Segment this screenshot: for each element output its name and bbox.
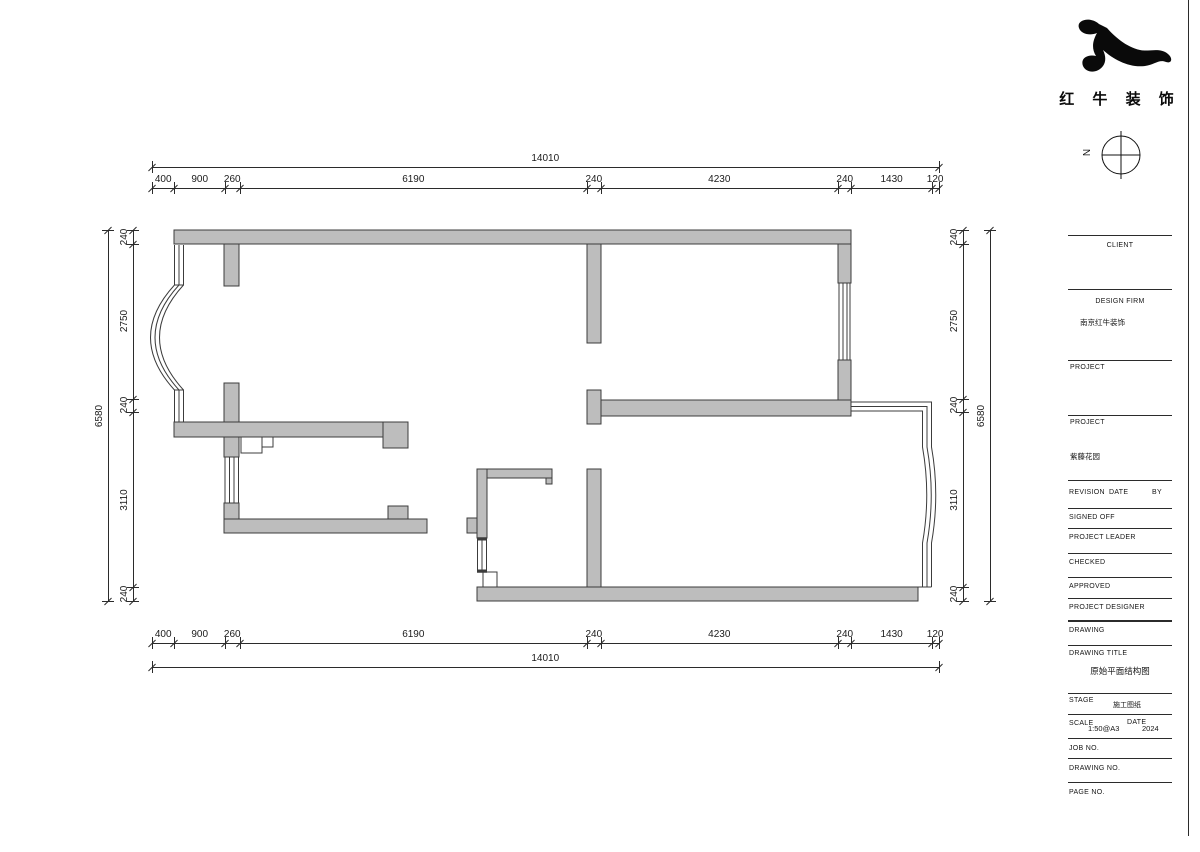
dim-label: 2750 [120,310,130,332]
titleblock-divider [1068,693,1172,694]
dim-line [108,230,109,601]
revision-label: REVISION [1069,489,1105,496]
dim-label: 6580 [95,404,105,426]
dim-label: 4230 [708,175,730,185]
titleblock-divider [1068,620,1172,622]
date-col-label: DATE [1109,489,1128,496]
stage-value: 施工图纸 [1113,702,1141,709]
titleblock-divider [1068,289,1172,290]
dim-label: 240 [585,630,602,640]
dim-label: 6580 [977,404,987,426]
dim-label: 240 [836,630,853,640]
titleblock-divider [1068,553,1172,554]
design-firm-value: 南京红牛装饰 [1080,319,1125,327]
drawing-title-label: DRAWING TITLE [1069,650,1127,657]
dim-label: 400 [155,630,172,640]
drawing-title-value: 原始平面结构图 [1068,667,1172,676]
titleblock-divider [1068,758,1172,759]
design-firm-label: DESIGN FIRM [1068,298,1172,305]
titleblock-divider [1068,360,1172,361]
dim-label: 120 [927,630,944,640]
dim-label: 240 [950,228,960,245]
dim-label: 2750 [950,310,960,332]
drawing-no-label: DRAWING NO. [1069,765,1120,772]
titleblock-divider [1068,415,1172,416]
dim-label: 3110 [120,489,130,511]
scale-value: 1:50@A3 [1088,725,1119,733]
dim-label: 260 [224,630,241,640]
project-designer-label: PROJECT DESIGNER [1069,604,1145,611]
dim-label: 900 [191,630,208,640]
dim-label: 6190 [402,630,424,640]
titleblock-divider [1068,577,1172,578]
titleblock-divider [1068,508,1172,509]
signed-off-label: SIGNED OFF [1069,514,1115,521]
dim-label: 900 [191,175,208,185]
dim-label: 120 [927,175,944,185]
project1-label: PROJECT [1070,364,1105,371]
titleblock-divider [1068,645,1172,646]
sheet-border-right [1188,0,1189,836]
date-value: 2024 [1142,725,1159,733]
project2-label: PROJECT [1070,419,1105,426]
dimension-layer: 1401040090026061902404230240143012040090… [0,0,1200,852]
brand-name: 红 牛 装 饰 [1058,88,1182,109]
drawing-sheet: 1401040090026061902404230240143012040090… [0,0,1200,852]
dim-label: 1430 [880,630,902,640]
dim-label: 240 [120,397,130,414]
dim-label: 4230 [708,630,730,640]
job-no-label: JOB NO. [1069,745,1099,752]
titleblock-divider [1068,480,1172,481]
titleblock-divider [1068,782,1172,783]
dim-line [152,188,939,189]
dim-label: 1430 [880,175,902,185]
project-leader-label: PROJECT LEADER [1069,534,1136,541]
north-indicator-icon [1095,128,1155,182]
dim-label: 240 [120,228,130,245]
dim-line [963,230,964,601]
approved-label: APPROVED [1069,583,1110,590]
brand-logo [1052,16,1184,86]
project2-value: 紫藤花园 [1070,453,1100,461]
by-label: BY [1152,489,1162,496]
titleblock-divider [1068,714,1172,715]
titleblock-divider [1068,738,1172,739]
dim-line [152,667,939,668]
dim-line [152,643,939,644]
dim-label: 6190 [402,175,424,185]
dim-label: 14010 [531,154,559,164]
dim-label: 14010 [531,654,559,664]
dim-label: 260 [224,175,241,185]
north-label: N [1082,149,1093,156]
titleblock-divider [1068,235,1172,236]
dim-label: 240 [120,586,130,603]
dim-label: 240 [585,175,602,185]
dim-label: 240 [836,175,853,185]
titleblock-divider [1068,528,1172,529]
dim-label: 400 [155,175,172,185]
dim-label: 3110 [950,489,960,511]
titleblock-divider [1068,598,1172,599]
dim-line [133,230,134,601]
checked-label: CHECKED [1069,559,1105,566]
dim-label: 240 [950,397,960,414]
drawing-label: DRAWING [1069,627,1105,634]
page-no-label: PAGE NO. [1069,789,1105,796]
dim-line [990,230,991,601]
stage-label: STAGE [1069,697,1094,704]
dim-line [152,167,939,168]
client-label: CLIENT [1068,242,1172,249]
dim-label: 240 [950,586,960,603]
